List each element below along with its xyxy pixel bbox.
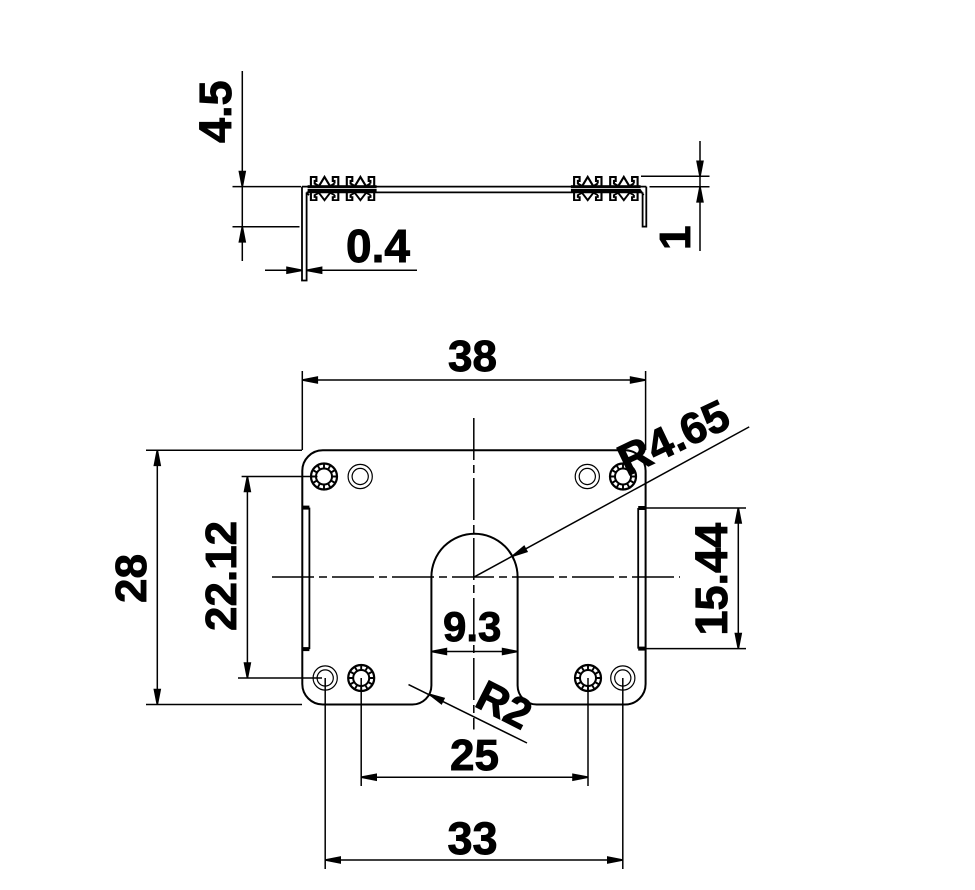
svg-text:1: 1 xyxy=(651,226,700,250)
svg-text:4.5: 4.5 xyxy=(190,80,241,143)
svg-text:33: 33 xyxy=(448,813,498,864)
svg-text:0.4: 0.4 xyxy=(346,220,410,272)
svg-text:22.12: 22.12 xyxy=(197,521,246,631)
svg-text:15.44: 15.44 xyxy=(686,523,737,636)
svg-text:28: 28 xyxy=(107,554,156,603)
svg-text:38: 38 xyxy=(448,332,497,381)
svg-text:25: 25 xyxy=(450,731,499,780)
svg-text:9.3: 9.3 xyxy=(443,603,501,650)
